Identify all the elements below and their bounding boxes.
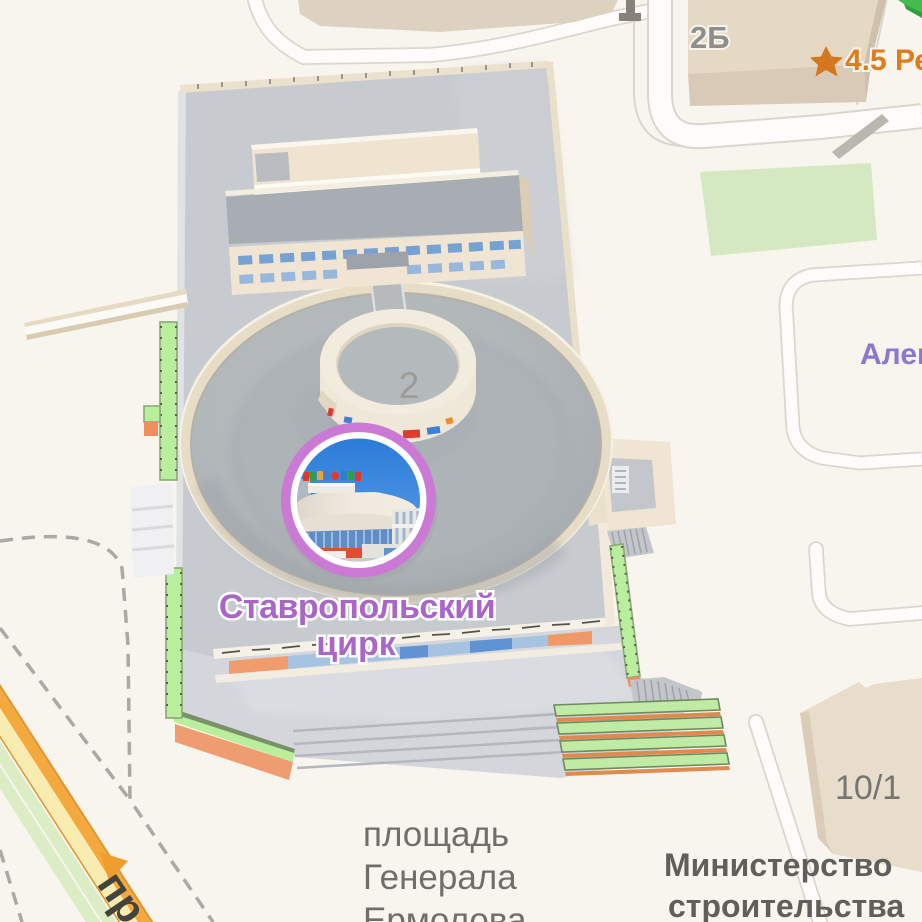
svg-text:цирк: цирк [316,625,397,663]
svg-text:10/1: 10/1 [835,769,901,807]
svg-text:Ставропольский: Ставропольский [219,588,495,626]
svg-text:Алек: Алек [860,338,922,371]
svg-text:площадь: площадь [363,815,509,854]
svg-text:строительства: строительства [668,888,904,922]
svg-text:2: 2 [399,365,420,406]
svg-text:Ермолова: Ермолова [363,901,527,922]
svg-text:Генерала: Генерала [363,858,517,897]
svg-text:2Б: 2Б [690,20,730,55]
svg-text:Министерство: Министерство [664,847,892,883]
svg-text:4.5 Ре: 4.5 Ре [845,44,922,77]
